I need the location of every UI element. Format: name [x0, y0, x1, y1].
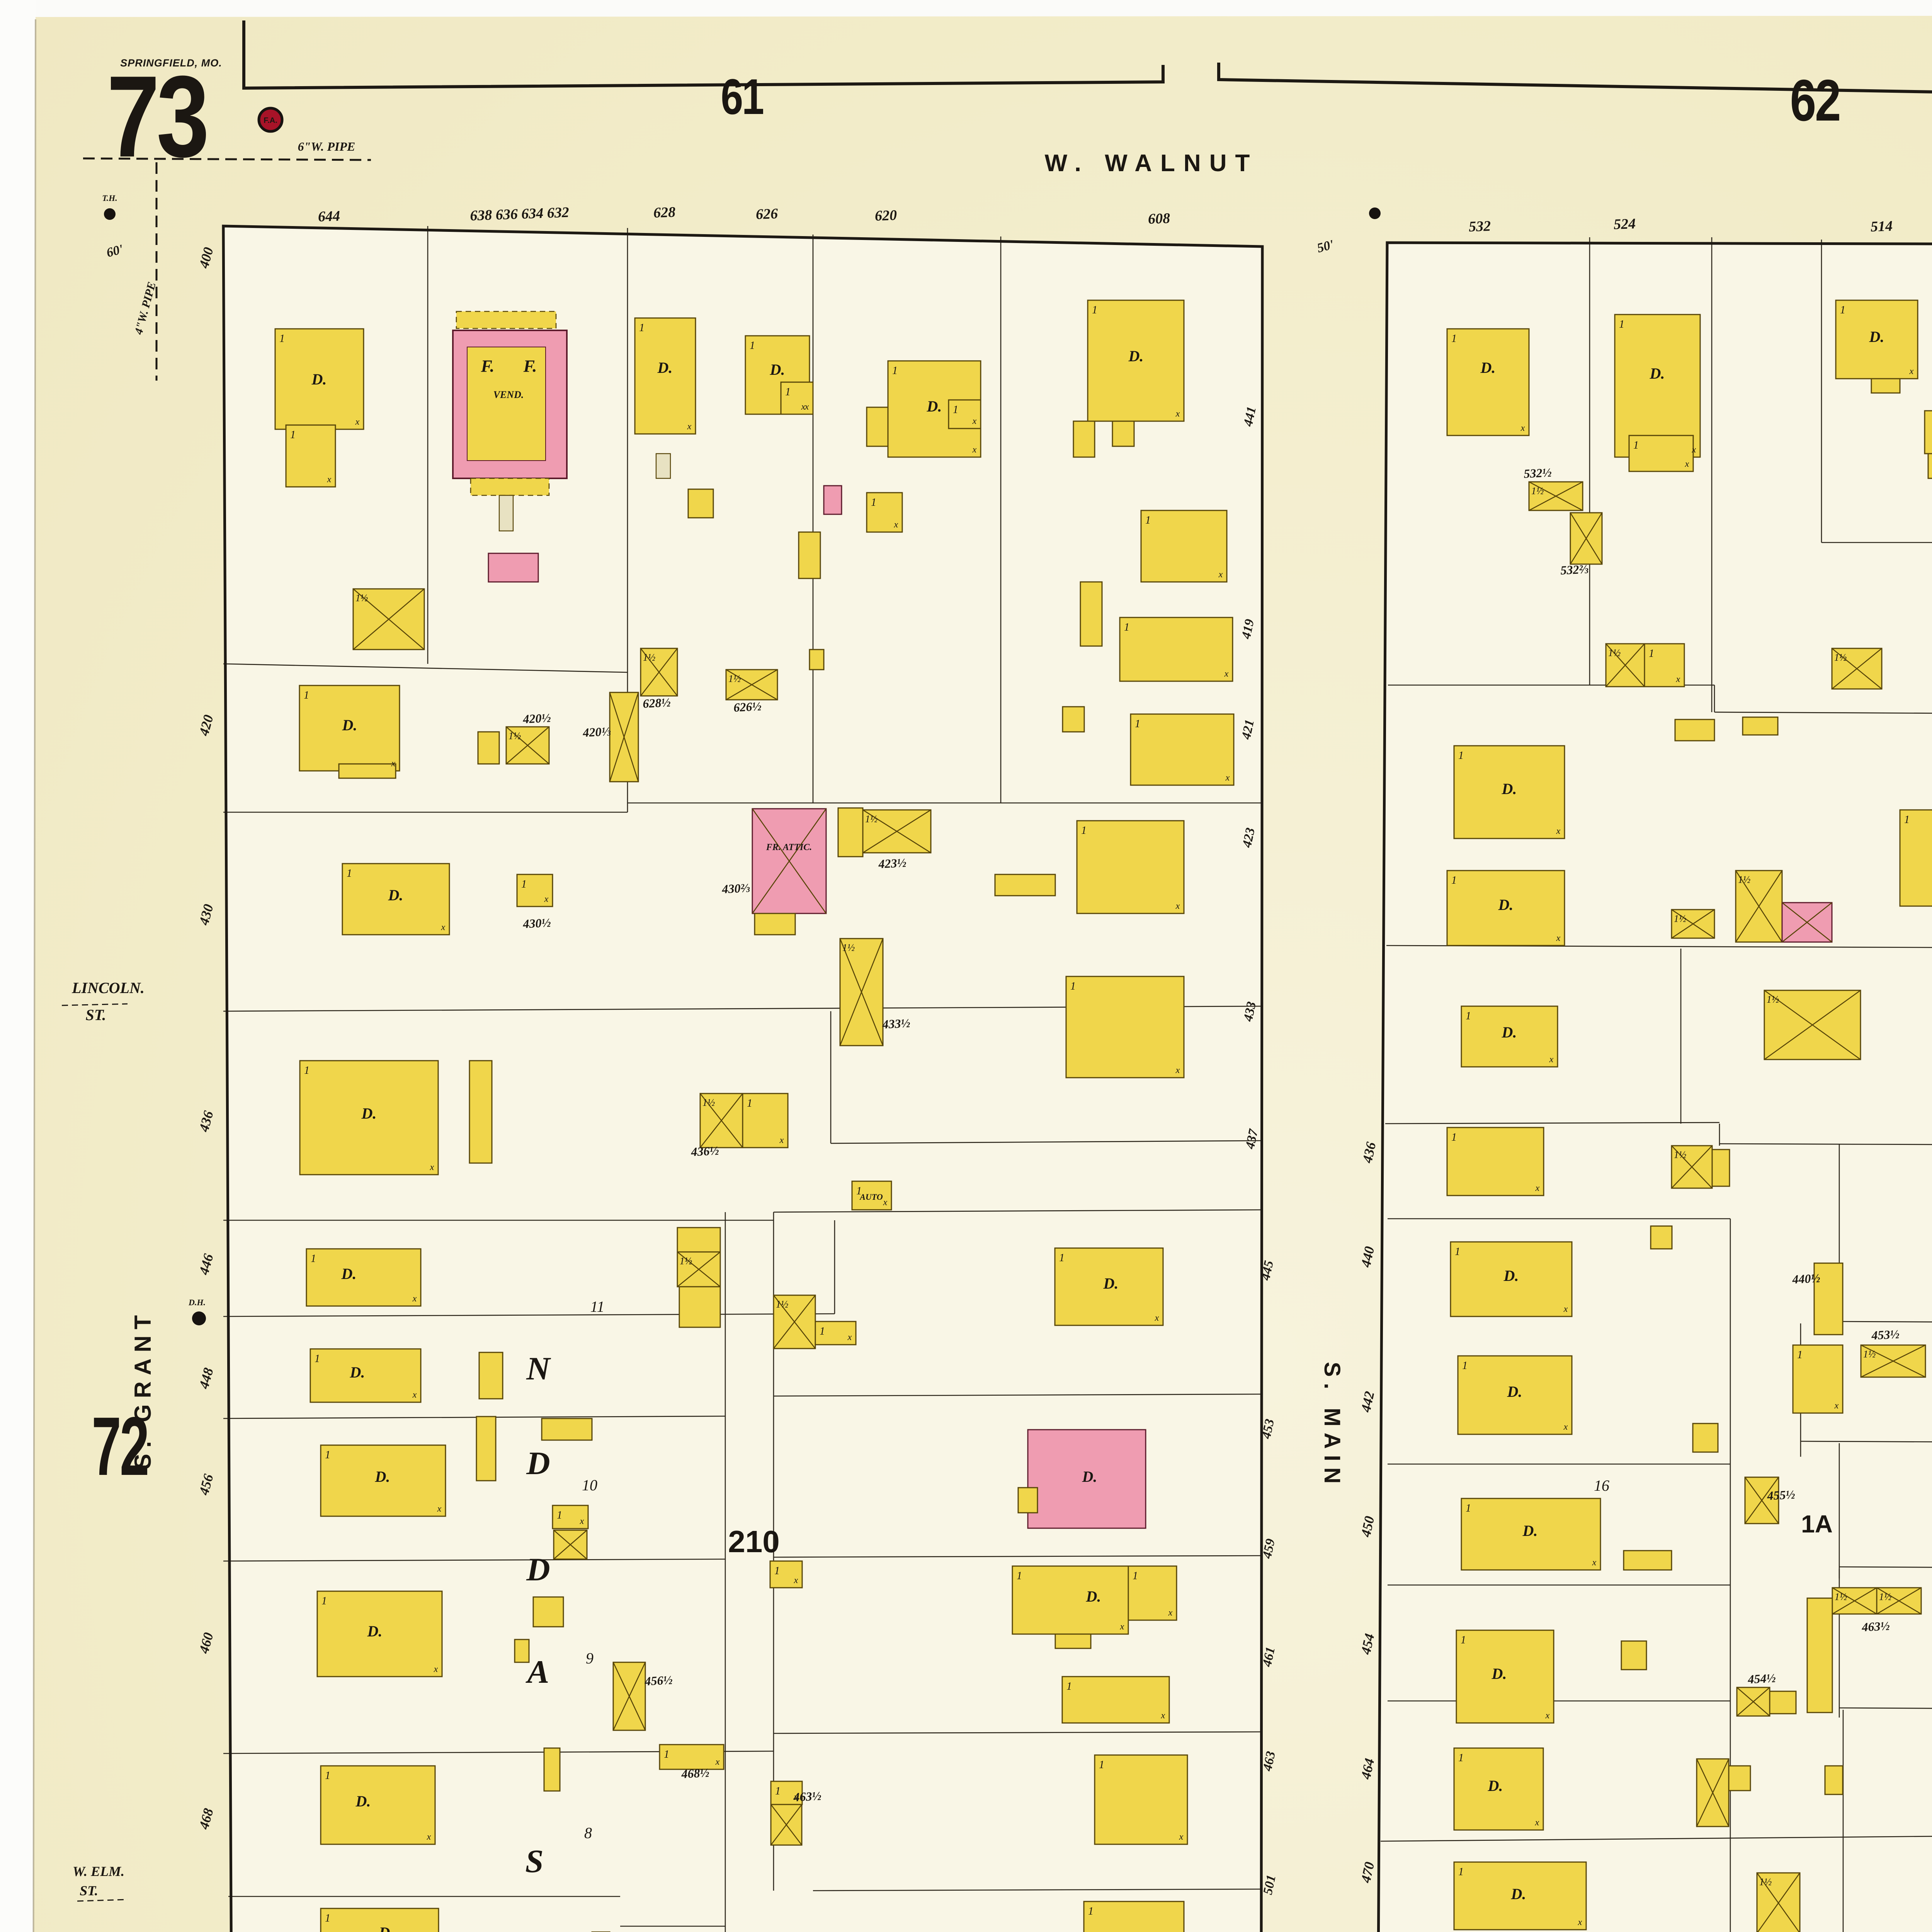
- svg-text:x: x: [1179, 1832, 1184, 1842]
- svg-text:1: 1: [521, 878, 527, 890]
- svg-text:D.: D.: [1503, 1267, 1519, 1284]
- svg-text:VEND.: VEND.: [493, 389, 524, 400]
- svg-text:1: 1: [785, 386, 791, 398]
- svg-text:1½: 1½: [776, 1299, 789, 1310]
- svg-text:455½: 455½: [1767, 1487, 1796, 1503]
- svg-text:210: 210: [728, 1524, 779, 1559]
- svg-text:D.: D.: [311, 371, 327, 388]
- svg-text:x: x: [1563, 1304, 1568, 1314]
- svg-text:x: x: [1225, 773, 1230, 783]
- svg-text:524: 524: [1613, 216, 1636, 233]
- svg-text:436½: 436½: [690, 1143, 719, 1159]
- svg-text:x: x: [1834, 1401, 1839, 1411]
- svg-text:1: 1: [1070, 980, 1076, 992]
- svg-text:638 636 634 632: 638 636 634 632: [470, 204, 570, 224]
- svg-text:1: 1: [279, 333, 285, 345]
- svg-text:x: x: [883, 1197, 888, 1207]
- svg-text:1: 1: [1135, 718, 1140, 730]
- svg-text:626½: 626½: [733, 699, 762, 714]
- svg-text:D.: D.: [375, 1468, 390, 1485]
- svg-text:x: x: [1563, 1422, 1568, 1432]
- svg-text:1½: 1½: [509, 730, 521, 742]
- svg-text:1½: 1½: [1674, 913, 1687, 924]
- svg-text:1: 1: [325, 1912, 330, 1924]
- svg-text:1: 1: [892, 365, 898, 377]
- svg-text:D.: D.: [1488, 1777, 1503, 1794]
- svg-text:1½: 1½: [680, 1255, 692, 1267]
- svg-text:628: 628: [653, 204, 675, 221]
- svg-text:1: 1: [1461, 1634, 1466, 1646]
- svg-text:532⅔: 532⅔: [1560, 562, 1589, 577]
- svg-text:626: 626: [755, 206, 778, 223]
- svg-text:1: 1: [1145, 514, 1151, 526]
- svg-text:W. WALNUT: W. WALNUT: [1045, 150, 1259, 177]
- svg-text:D: D: [526, 1445, 550, 1481]
- svg-text:x: x: [715, 1757, 720, 1767]
- svg-text:D.: D.: [1650, 365, 1665, 382]
- svg-text:1: 1: [953, 404, 958, 416]
- svg-text:61: 61: [721, 68, 763, 125]
- svg-text:x: x: [1909, 366, 1914, 376]
- svg-text:x: x: [1685, 459, 1689, 469]
- svg-text:AUTO: AUTO: [859, 1192, 883, 1202]
- svg-text:ST.: ST.: [80, 1883, 98, 1898]
- svg-text:x: x: [355, 417, 360, 427]
- svg-text:11: 11: [590, 1298, 604, 1315]
- svg-text:453½: 453½: [1871, 1327, 1900, 1342]
- svg-text:x: x: [441, 922, 446, 932]
- svg-text:1: 1: [1649, 648, 1654, 660]
- svg-text:N: N: [526, 1350, 551, 1387]
- svg-text:ST.: ST.: [85, 1006, 106, 1024]
- svg-text:x: x: [794, 1575, 798, 1585]
- svg-text:D.: D.: [657, 359, 673, 376]
- svg-text:D.: D.: [355, 1793, 371, 1810]
- svg-text:x: x: [580, 1516, 584, 1526]
- svg-text:532½: 532½: [1524, 465, 1552, 481]
- svg-text:D.H.: D.H.: [188, 1298, 206, 1307]
- svg-text:D.: D.: [388, 886, 403, 904]
- svg-text:x: x: [1175, 901, 1180, 911]
- svg-text:x: x: [847, 1332, 852, 1342]
- svg-text:x: x: [1161, 1711, 1165, 1721]
- svg-text:1: 1: [747, 1097, 752, 1109]
- svg-text:x: x: [779, 1135, 784, 1145]
- svg-text:x: x: [1545, 1711, 1550, 1721]
- svg-text:T.H.: T.H.: [102, 193, 117, 203]
- svg-text:x: x: [430, 1162, 434, 1172]
- svg-text:F.: F.: [481, 357, 495, 376]
- svg-text:1½: 1½: [1531, 485, 1544, 497]
- svg-text:D.: D.: [361, 1105, 377, 1122]
- svg-text:10: 10: [582, 1476, 597, 1494]
- svg-text:x: x: [1175, 1065, 1180, 1075]
- svg-text:x: x: [1592, 1558, 1597, 1568]
- svg-text:D.: D.: [350, 1364, 365, 1381]
- svg-text:S. MAIN: S. MAIN: [1320, 1362, 1345, 1490]
- svg-text:1: 1: [1797, 1349, 1803, 1361]
- svg-text:D.: D.: [1511, 1885, 1526, 1903]
- svg-text:D.: D.: [1128, 347, 1144, 365]
- svg-text:1: 1: [1462, 1360, 1468, 1372]
- svg-text:1: 1: [1458, 1866, 1464, 1878]
- svg-text:D.: D.: [927, 398, 942, 415]
- svg-text:D.: D.: [770, 361, 785, 378]
- svg-text:1: 1: [664, 1748, 669, 1760]
- svg-text:1: 1: [1088, 1905, 1094, 1917]
- svg-text:x: x: [1578, 1917, 1582, 1927]
- svg-text:x: x: [544, 894, 549, 904]
- svg-text:1: 1: [321, 1595, 327, 1607]
- svg-text:1½: 1½: [355, 592, 368, 604]
- svg-text:x: x: [1535, 1183, 1540, 1193]
- svg-text:S. GRANT: S. GRANT: [130, 1309, 156, 1469]
- svg-text:1: 1: [871, 497, 876, 509]
- svg-text:D: D: [526, 1551, 550, 1588]
- svg-text:454½: 454½: [1747, 1671, 1776, 1686]
- svg-text:D.: D.: [1082, 1468, 1097, 1485]
- svg-text:1: 1: [1466, 1010, 1471, 1022]
- svg-text:1½: 1½: [643, 652, 656, 663]
- svg-text:468½: 468½: [681, 1765, 710, 1781]
- svg-text:620: 620: [874, 207, 897, 224]
- svg-text:x: x: [327, 474, 332, 485]
- svg-text:x: x: [804, 402, 809, 412]
- svg-text:1: 1: [347, 867, 352, 879]
- svg-text:x: x: [1556, 933, 1561, 943]
- svg-text:D.: D.: [1869, 328, 1884, 345]
- svg-text:D.: D.: [1103, 1275, 1119, 1292]
- svg-text:x: x: [437, 1504, 442, 1514]
- svg-text:1: 1: [1124, 621, 1129, 633]
- svg-text:1: 1: [750, 340, 755, 352]
- svg-text:1: 1: [1840, 304, 1845, 316]
- svg-text:D.: D.: [1507, 1383, 1522, 1400]
- svg-text:1: 1: [311, 1253, 316, 1265]
- svg-text:1: 1: [775, 1785, 781, 1797]
- svg-text:D.: D.: [1498, 896, 1514, 913]
- svg-text:x: x: [972, 416, 977, 426]
- svg-text:FR. ATTIC.: FR. ATTIC.: [766, 842, 812, 852]
- svg-text:1: 1: [304, 689, 309, 701]
- svg-text:1: 1: [1451, 1131, 1457, 1143]
- svg-text:x: x: [412, 1390, 417, 1400]
- svg-text:1: 1: [1451, 874, 1457, 886]
- svg-text:1: 1: [1619, 318, 1624, 330]
- svg-text:1½: 1½: [1608, 647, 1621, 658]
- svg-text:x: x: [434, 1664, 438, 1674]
- svg-text:F.: F.: [523, 357, 537, 376]
- svg-text:8: 8: [584, 1824, 592, 1842]
- svg-text:D.: D.: [1502, 780, 1517, 798]
- svg-text:456½: 456½: [644, 1673, 673, 1688]
- svg-text:1½: 1½: [702, 1097, 715, 1108]
- svg-text:1: 1: [1092, 304, 1097, 316]
- svg-text:1: 1: [820, 1325, 825, 1337]
- svg-text:1: 1: [1633, 439, 1639, 451]
- svg-text:644: 644: [318, 208, 340, 225]
- svg-text:D.: D.: [1502, 1024, 1517, 1041]
- svg-text:1: 1: [325, 1449, 330, 1461]
- svg-text:x: x: [1556, 826, 1561, 836]
- svg-text:628½: 628½: [643, 695, 671, 711]
- svg-text:430⅔: 430⅔: [721, 881, 750, 896]
- svg-text:433½: 433½: [882, 1016, 911, 1031]
- svg-text:1: 1: [774, 1565, 780, 1577]
- svg-text:514: 514: [1870, 218, 1893, 235]
- svg-text:1: 1: [1451, 333, 1457, 345]
- svg-text:x: x: [412, 1294, 417, 1304]
- svg-text:S: S: [525, 1843, 543, 1879]
- svg-text:1: 1: [290, 429, 296, 441]
- svg-text:440½: 440½: [1792, 1271, 1821, 1286]
- svg-text:x: x: [687, 422, 692, 432]
- svg-text:x: x: [794, 1792, 798, 1802]
- svg-text:x: x: [1218, 570, 1223, 580]
- svg-text:1: 1: [1081, 825, 1087, 837]
- svg-text:D.: D.: [367, 1622, 383, 1640]
- svg-text:1: 1: [1455, 1246, 1460, 1258]
- svg-text:1: 1: [557, 1509, 562, 1521]
- svg-text:1: 1: [304, 1065, 310, 1077]
- svg-text:1: 1: [1466, 1502, 1471, 1514]
- svg-text:x: x: [1676, 674, 1680, 684]
- svg-text:73: 73: [107, 52, 207, 182]
- svg-text:1½: 1½: [1674, 1149, 1687, 1160]
- svg-text:1½: 1½: [1835, 1591, 1847, 1602]
- svg-text:1: 1: [1099, 1759, 1104, 1771]
- svg-text:x: x: [1224, 669, 1229, 679]
- svg-text:D.: D.: [1492, 1665, 1507, 1682]
- svg-text:SPRINGFIELD, MO.: SPRINGFIELD, MO.: [120, 57, 222, 69]
- svg-text:532: 532: [1468, 218, 1491, 235]
- svg-text:608: 608: [1148, 210, 1170, 227]
- svg-text:423½: 423½: [878, 855, 907, 871]
- svg-text:420⅓: 420⅓: [582, 724, 611, 740]
- svg-text:1: 1: [315, 1353, 320, 1365]
- svg-text:x: x: [1692, 445, 1696, 455]
- svg-text:x: x: [972, 445, 977, 455]
- svg-text:1½: 1½: [1767, 994, 1779, 1005]
- svg-text:1½: 1½: [728, 673, 741, 684]
- svg-text:1½: 1½: [1863, 1349, 1876, 1360]
- svg-text:1½: 1½: [1879, 1591, 1892, 1602]
- svg-text:x: x: [427, 1832, 431, 1842]
- svg-text:6"W. PIPE: 6"W. PIPE: [298, 139, 355, 153]
- svg-text:D.: D.: [1086, 1588, 1101, 1605]
- svg-text:x: x: [1120, 1622, 1124, 1632]
- svg-text:420½: 420½: [522, 711, 551, 726]
- svg-text:x: x: [1168, 1608, 1173, 1618]
- svg-text:1½: 1½: [842, 942, 855, 953]
- svg-text:A: A: [526, 1654, 549, 1690]
- svg-text:1A: 1A: [1801, 1510, 1833, 1538]
- svg-text:9: 9: [586, 1650, 594, 1667]
- svg-text:LINCOLN.: LINCOLN.: [71, 979, 145, 997]
- svg-text:62: 62: [1790, 68, 1840, 133]
- svg-text:1: 1: [325, 1770, 330, 1782]
- svg-text:430½: 430½: [522, 915, 551, 931]
- svg-text:1: 1: [639, 322, 645, 334]
- svg-text:463½: 463½: [1861, 1619, 1890, 1634]
- svg-text:D.: D.: [1522, 1522, 1538, 1539]
- svg-text:x: x: [1535, 1818, 1539, 1828]
- svg-text:1: 1: [1059, 1252, 1065, 1264]
- svg-text:1½: 1½: [1738, 874, 1751, 885]
- svg-text:D.: D.: [342, 716, 357, 734]
- svg-text:1: 1: [1458, 750, 1464, 762]
- svg-text:x: x: [1155, 1313, 1159, 1323]
- svg-text:1: 1: [1458, 1752, 1464, 1764]
- svg-text:1: 1: [1017, 1570, 1022, 1582]
- svg-text:1: 1: [1904, 814, 1910, 826]
- svg-text:1: 1: [1066, 1680, 1072, 1692]
- svg-text:x: x: [1549, 1054, 1554, 1065]
- svg-text:1: 1: [856, 1185, 862, 1197]
- svg-text:W. ELM.: W. ELM.: [73, 1864, 124, 1879]
- svg-text:D.: D.: [379, 1924, 394, 1932]
- svg-text:1: 1: [1133, 1570, 1138, 1582]
- svg-text:D.: D.: [1480, 359, 1496, 376]
- svg-text:x: x: [1175, 409, 1180, 419]
- svg-text:x: x: [1520, 423, 1525, 433]
- svg-text:1½: 1½: [865, 813, 878, 825]
- svg-text:x: x: [894, 520, 898, 530]
- svg-text:F.A.: F.A.: [264, 116, 277, 125]
- svg-text:1½: 1½: [1834, 652, 1847, 663]
- svg-text:1½: 1½: [1759, 1876, 1772, 1888]
- svg-text:x: x: [391, 759, 396, 769]
- svg-text:16: 16: [1594, 1477, 1609, 1494]
- svg-text:D.: D.: [341, 1265, 357, 1282]
